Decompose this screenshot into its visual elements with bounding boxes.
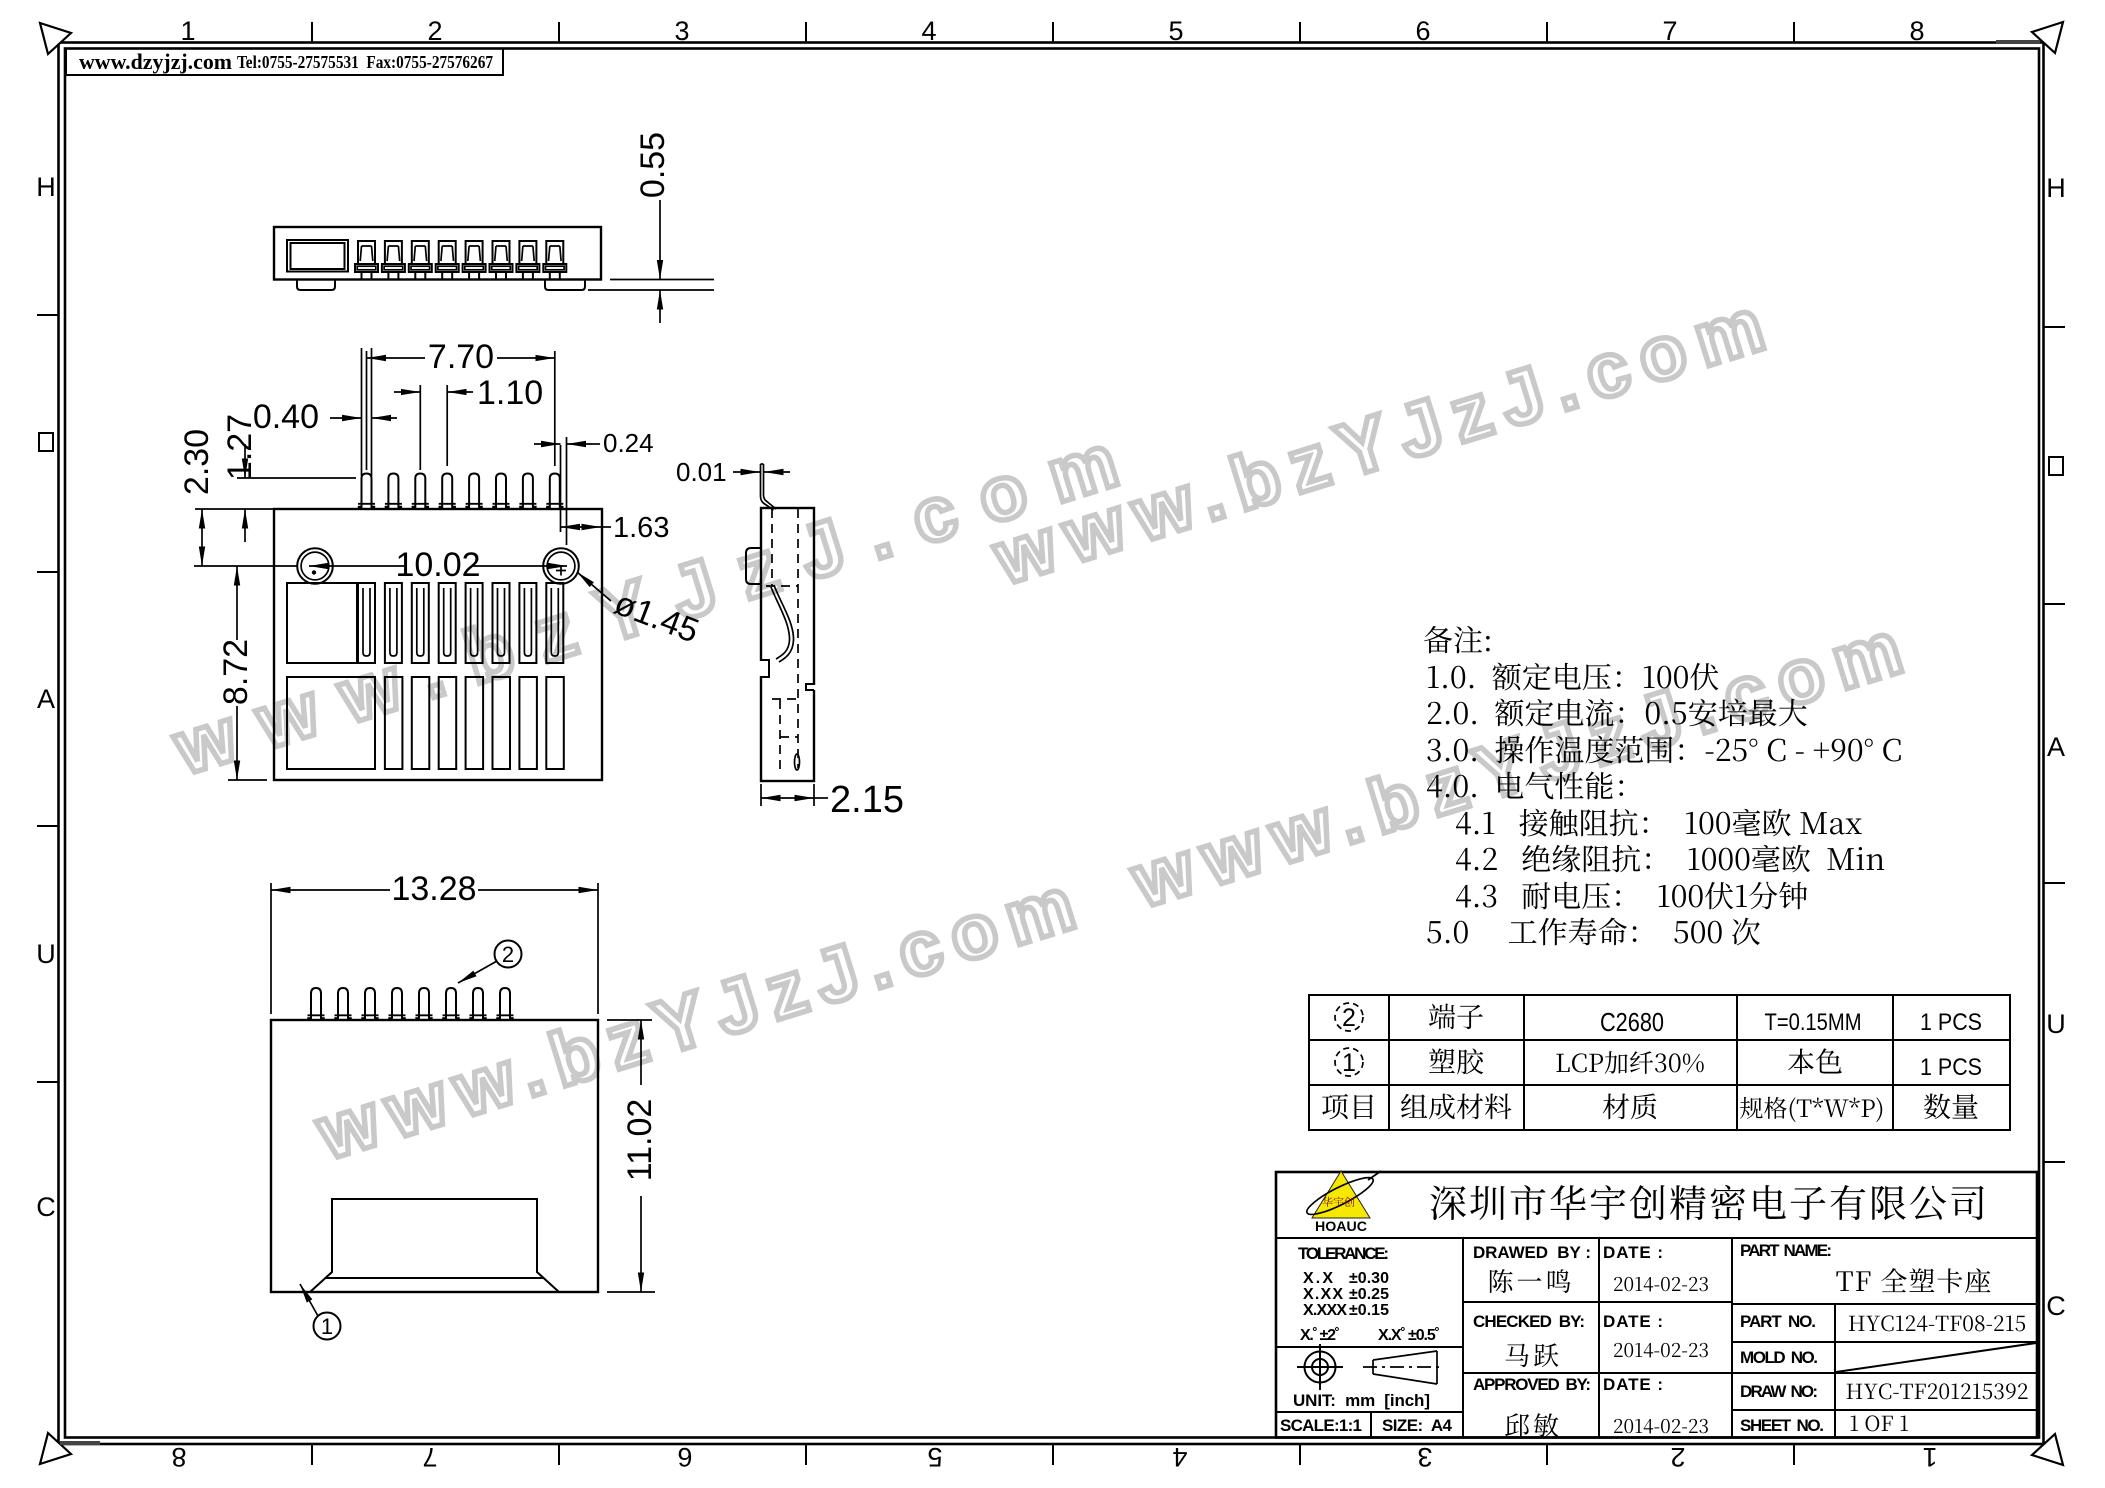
svg-text:DRAW NO:: DRAW NO:	[1740, 1382, 1818, 1401]
svg-text:2: 2	[502, 942, 514, 967]
svg-text:H: H	[2046, 173, 2066, 203]
svg-text:CHECKED BY:: CHECKED BY:	[1473, 1312, 1585, 1331]
svg-text:2: 2	[427, 16, 442, 46]
svg-text:DATE :: DATE :	[1603, 1243, 1663, 1262]
svg-text:2: 2	[1670, 1442, 1685, 1472]
svg-text:X.˚ ±2˚: X.˚ ±2˚	[1300, 1327, 1340, 1344]
svg-text:±0.25: ±0.25	[1349, 1286, 1389, 1303]
svg-text:C2680: C2680	[1600, 1007, 1664, 1037]
svg-text:1 PCS: 1 PCS	[1920, 1009, 1982, 1036]
svg-text:DRAWED BY :: DRAWED BY :	[1473, 1243, 1591, 1262]
svg-text:1.27: 1.27	[221, 414, 259, 480]
svg-text:0.40: 0.40	[253, 398, 319, 436]
svg-text:X.X˚ ±0.5˚: X.X˚ ±0.5˚	[1378, 1327, 1440, 1344]
svg-text:7: 7	[422, 1442, 437, 1472]
svg-text:Tel:0755-27575531 Fax:0755-27: Tel:0755-27575531 Fax:0755-27576267	[237, 52, 493, 72]
svg-text:10.02: 10.02	[395, 546, 480, 584]
svg-text:0.24: 0.24	[603, 428, 654, 458]
svg-text:1: 1	[1922, 1442, 1937, 1472]
svg-text:DATE :: DATE :	[1603, 1312, 1663, 1331]
svg-text:1 PCS: 1 PCS	[1920, 1054, 1982, 1081]
svg-text:11.02: 11.02	[621, 1099, 659, 1182]
svg-text:APPROVED BY:: APPROVED BY:	[1473, 1375, 1591, 1394]
svg-text:HOAUC: HOAUC	[1315, 1218, 1367, 1234]
svg-text:4: 4	[1172, 1442, 1187, 1472]
svg-text:2: 2	[1342, 1004, 1356, 1032]
svg-text:7: 7	[1662, 16, 1677, 46]
svg-text:A: A	[2047, 732, 2065, 762]
svg-text:7.70: 7.70	[428, 338, 494, 376]
svg-text:2.30: 2.30	[178, 429, 216, 495]
svg-text:SCALE:1:1: SCALE:1:1	[1280, 1416, 1362, 1435]
svg-text:X.XX: X.XX	[1303, 1286, 1343, 1303]
svg-text:T=0.15MM: T=0.15MM	[1765, 1009, 1862, 1036]
svg-text:DATE :: DATE :	[1603, 1375, 1663, 1394]
svg-text:X.XXX: X.XXX	[1303, 1302, 1347, 1319]
svg-text:6: 6	[1415, 16, 1430, 46]
svg-text:UNIT: mm [inch]: UNIT: mm [inch]	[1293, 1391, 1430, 1410]
svg-text:±0.30: ±0.30	[1349, 1270, 1389, 1287]
svg-text:1.10: 1.10	[477, 374, 543, 412]
svg-text:0.55: 0.55	[634, 132, 672, 198]
svg-text:±0.15: ±0.15	[1349, 1302, 1389, 1319]
svg-text:C: C	[2046, 1291, 2066, 1321]
svg-text:U: U	[2046, 1009, 2066, 1039]
svg-text:5: 5	[927, 1442, 942, 1472]
svg-text:0.01: 0.01	[676, 457, 727, 487]
svg-text:6: 6	[677, 1442, 692, 1472]
svg-text:SIZE: A4: SIZE: A4	[1382, 1416, 1453, 1435]
svg-text:X.X: X.X	[1303, 1270, 1333, 1287]
svg-text:PART NAME:: PART NAME:	[1740, 1241, 1832, 1260]
svg-text:3: 3	[674, 16, 689, 46]
svg-text:MOLD NO.: MOLD NO.	[1740, 1348, 1818, 1367]
svg-text:4: 4	[921, 16, 936, 46]
svg-text:2.15: 2.15	[830, 779, 904, 821]
svg-text:8.72: 8.72	[217, 639, 255, 705]
svg-text:TOLERANCE:: TOLERANCE:	[1298, 1244, 1389, 1263]
svg-text:1.63: 1.63	[613, 512, 669, 544]
svg-text:H: H	[36, 172, 56, 202]
svg-text:8: 8	[171, 1442, 186, 1472]
svg-text:SHEET NO.: SHEET NO.	[1740, 1416, 1824, 1435]
svg-text:5: 5	[1168, 16, 1183, 46]
svg-text:3: 3	[1417, 1442, 1432, 1472]
svg-text:www.dzyjzj.com: www.dzyjzj.com	[79, 49, 232, 74]
svg-text:1: 1	[321, 1314, 333, 1339]
svg-text:C: C	[36, 1192, 56, 1222]
svg-text:U: U	[36, 939, 56, 969]
svg-text:A: A	[37, 684, 55, 714]
svg-text:13.28: 13.28	[391, 870, 476, 908]
svg-text:1: 1	[1342, 1049, 1356, 1077]
svg-text:PART NO.: PART NO.	[1740, 1312, 1816, 1331]
svg-text:8: 8	[1909, 16, 1924, 46]
svg-text:1: 1	[180, 16, 195, 46]
